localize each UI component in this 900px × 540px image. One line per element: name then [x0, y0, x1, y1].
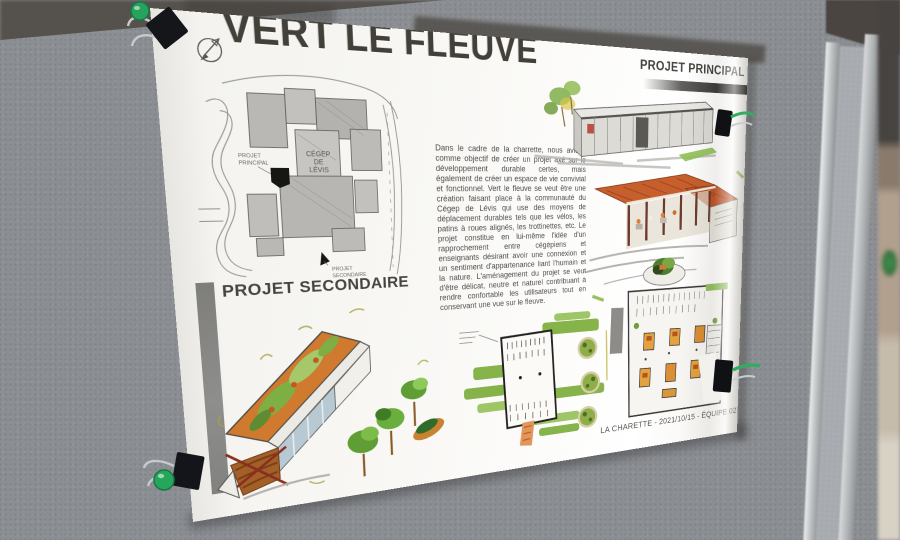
- site-plan-principal-marker: [270, 168, 290, 188]
- sketch2-green-accent-top: [737, 171, 744, 177]
- sketch-plan-green-bands: [451, 308, 612, 471]
- sketch5-round-trees: [578, 336, 601, 429]
- sketch-green-roof-building: [198, 296, 454, 509]
- sketch3-gray-bar: [610, 308, 624, 354]
- push-pin-green: [154, 470, 174, 490]
- clip-body: [714, 109, 732, 137]
- clip-body: [171, 452, 204, 490]
- sketch2-green-accent-bottom: [592, 295, 603, 301]
- poster: VERT LE FLEUVE: [150, 8, 748, 522]
- clip-body: [713, 359, 734, 392]
- site-plan-secondaire-label-line1: PROJET: [332, 266, 353, 272]
- site-plan-cegep-line3: LÉVIS: [309, 166, 329, 174]
- sketch1-green-path: [679, 147, 718, 162]
- binder-clip-bottom-left: [134, 444, 214, 506]
- room-green-object: [882, 250, 897, 276]
- sketch1-red-sign: [587, 124, 594, 134]
- binder-clip-right-lower: [696, 350, 766, 405]
- clip-handle-green: [733, 365, 760, 370]
- section-label-principal: PROJET PRINCIPAL: [619, 56, 745, 80]
- clip-handle-silver: [733, 376, 755, 380]
- sketch-pavilion-perspective: [525, 73, 726, 172]
- clip-body: [145, 6, 188, 50]
- clip-handle-green: [731, 113, 754, 117]
- push-pin-green: [131, 2, 149, 20]
- site-plan-secondaire-marker: [320, 252, 330, 266]
- poster-title: VERT LE FLEUVE: [221, 8, 538, 72]
- board-frame-right: [826, 0, 900, 540]
- site-plan-principal-label-line1: PROJET: [238, 153, 261, 159]
- sketch5-yellow-line: [606, 330, 607, 380]
- binder-clip-top-left: [118, 0, 196, 60]
- clip-handle-silver: [731, 123, 752, 126]
- photo-scene: VERT LE FLEUVE: [0, 0, 900, 540]
- sketch5-plan-outline: [501, 330, 556, 429]
- binder-clip-right-upper: [702, 102, 757, 142]
- site-plan-drawing: CÉGEP DE LÉVIS PROJET PRINCIPAL PROJET S…: [187, 60, 417, 295]
- sketch1-door-opening: [636, 117, 649, 148]
- sketch5-annotation-marks: [459, 330, 498, 345]
- sketch3-green-ramp: [706, 282, 728, 291]
- site-plan-principal-label-line2: PRINCIPAL: [238, 160, 269, 166]
